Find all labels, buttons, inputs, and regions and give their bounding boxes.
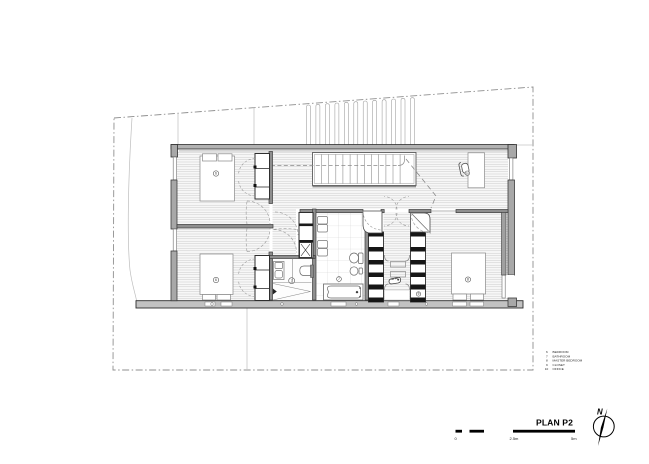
svg-text:10: 10 bbox=[466, 171, 470, 175]
svg-text:2.5m: 2.5m bbox=[510, 436, 520, 441]
svg-text:6: 6 bbox=[215, 278, 217, 282]
svg-text:OFFICE: OFFICE bbox=[553, 367, 564, 371]
svg-text:N: N bbox=[597, 408, 603, 417]
svg-text:9: 9 bbox=[418, 292, 420, 296]
svg-text:5m: 5m bbox=[571, 436, 577, 441]
svg-text:6: 6 bbox=[215, 172, 217, 176]
svg-text:10: 10 bbox=[545, 367, 549, 371]
svg-text:8: 8 bbox=[467, 278, 469, 282]
svg-text:7: 7 bbox=[338, 277, 340, 281]
svg-text:PLAN P2: PLAN P2 bbox=[536, 418, 573, 428]
